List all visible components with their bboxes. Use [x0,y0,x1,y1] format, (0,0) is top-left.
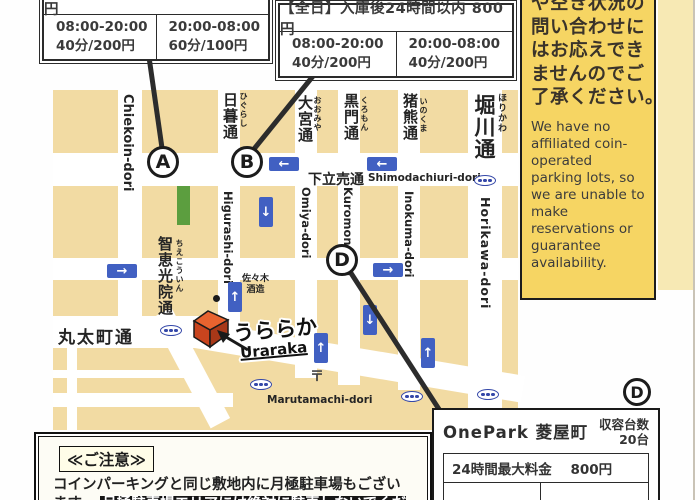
max-rate-value: 800円 [571,462,613,478]
rate-label: 60分/100円 [169,37,265,56]
notice-jp-line-partial: や空き状況の [531,0,645,16]
rate-label: 40分/200円 [409,54,509,73]
price-cell: 20:00-08:00 60分/100円 [156,15,269,59]
map-marker-d: D [326,244,358,276]
price-box-b-header: 【全日】入庫後24時間以内 800円 [280,5,512,32]
page-fold-strip [658,0,694,290]
notice-jp-line: 了承ください。 [531,86,645,110]
street-label-shimodachiuri: 下立売通 [308,169,364,189]
street-label-inokuma-kana: いのくま [418,97,429,133]
hours-label: 08:00-20:00 [292,35,392,54]
one-way-arrow-left-icon [269,157,299,171]
max-rate-row: 24時間最大料金 800円 [444,454,648,482]
caution-title: ≪ご注意≫ [59,446,154,472]
street-label-higurashi-romaji: Higurashi-dori [221,191,235,284]
notice-jp-line: ませんのでご [531,63,645,87]
post-office-icon: 〒 [310,366,324,386]
street-label-marutamachi: 丸太町通 [58,323,134,348]
rate-label: 40分/200円 [292,54,392,73]
map-marker-a: A [147,146,179,178]
capacity-value: 20台 [619,432,649,447]
street-label-horikawa-romaji: Horikawa-dori [478,197,493,309]
caution-text: コインパーキングと同じ敷地内に月極駐車場もござい ます。 月極駐車場エリアには絶… [53,476,417,500]
parking-map-flyer: 【全日】入庫後24時間以内 900円 08:00-20:00 40分/200円 … [0,0,700,500]
one-way-arrow-down-icon [363,305,377,335]
sasaki-line2: 酒造 [242,285,269,296]
traffic-light-icon [160,325,182,336]
traffic-light-icon [474,175,496,186]
caution-line2: ます。 月極駐車場エリアには絶対に駐車しないでください [53,495,417,500]
sasaki-brewery-label: 佐々木 酒造 [242,274,269,296]
hours-label: 20:00-08:00 [409,35,509,54]
price-box-a-header: 【全日】入庫後24時間以内 900円 [44,0,268,15]
price-cell: 20:00-08:00 40分/200円 [396,32,513,76]
caution-box-inner: ≪ご注意≫ コインパーキングと同じ敷地内に月極駐車場もござい ます。 月極駐車場… [38,436,428,500]
parking-price-box-a: 【全日】入庫後24時間以内 900円 08:00-20:00 40分/200円 … [42,0,270,61]
box-marker-d: D [623,378,651,406]
green-landmark-block [177,186,190,225]
one-way-arrow-up-icon [228,282,242,312]
max-rate-label: 24時間最大料金 [452,462,552,478]
onepark-capacity: 収容台数 20台 [599,417,649,447]
street-label-inokuma-romaji: Inokuma-dori [402,191,416,277]
notice-jp-line: はお応えでき [531,39,645,63]
price-cell: 08:00-20:00 40分/200円 [280,32,396,76]
rate-row-clipped [444,482,648,500]
no-affiliated-parking-notice-panel: や空き状況の 問い合わせに はお応えでき ませんのでご 了承ください。 We h… [520,0,656,300]
onepark-rate-table: 24時間最大料金 800円 [443,453,649,500]
brewery-location-dot [213,295,220,302]
one-way-arrow-up-icon [421,338,435,368]
traffic-light-icon [477,389,499,400]
hours-label: 08:00-20:00 [56,18,152,37]
street-label-horikawa-kana: ほりかわ [495,93,508,133]
street-label-kuromon-kana: くろもん [359,96,370,132]
sasaki-line1: 佐々木 [242,274,269,285]
scan-page-edge [693,0,695,500]
street-label-chiekoin: 智恵光院通 [155,236,176,316]
notice-english-text: We have no affiliated coin-operated park… [531,119,645,272]
one-way-arrow-right-icon [373,263,403,277]
street-minor-horizontal [53,370,200,378]
traffic-light-icon [401,391,423,402]
onepark-info-box: OnePark 菱屋町 収容台数 20台 24時間最大料金 800円 [432,408,660,500]
notice-jp-line: 問い合わせに [531,16,645,40]
traffic-light-icon [250,379,272,390]
onepark-name: OnePark 菱屋町 [443,417,588,443]
street-label-marutamachi-romaji: Marutamachi-dori [267,394,372,406]
one-way-arrow-down-icon [259,197,273,227]
one-way-arrow-right-icon [107,264,137,278]
rate-label: 40分/200円 [56,37,152,56]
street-label-chiekoin-romaji: Chiekoin-dori [120,94,135,192]
street-minor-horizontal [53,393,233,407]
street-label-omiya-kana: おおみや [312,96,323,132]
caution-line2-prefix: ます。 [53,496,95,500]
capacity-label: 収容台数 [599,417,649,432]
parking-price-box-b: 【全日】入庫後24時間以内 800円 08:00-20:00 40分/200円 … [278,3,514,78]
one-way-arrow-left-icon [367,157,397,171]
caution-box: ≪ご注意≫ コインパーキングと同じ敷地内に月極駐車場もござい ます。 月極駐車場… [34,432,432,500]
street-label-higurashi-kana: ひぐらし [238,92,249,128]
street-label-chiekoin-kana: ちえこういん [174,239,185,293]
caution-line1: コインパーキングと同じ敷地内に月極駐車場もござい [53,476,417,495]
price-box-a-cells: 08:00-20:00 40分/200円 20:00-08:00 60分/100… [44,15,268,59]
street-label-shimodachiuri-romaji: Shimodachiuri-dori [368,172,481,184]
price-cell: 08:00-20:00 40分/200円 [44,15,156,59]
hours-label: 20:00-08:00 [169,18,265,37]
caution-line2-highlight: 月極駐車場エリアには絶対に駐車しないでください [53,496,406,500]
price-box-b-cells: 08:00-20:00 40分/200円 20:00-08:00 40分/200… [280,32,512,76]
onepark-header: OnePark 菱屋町 収容台数 20台 [443,417,649,447]
map-marker-b: B [231,146,263,178]
street-label-omiya-romaji: Omiya-dori [299,187,313,258]
